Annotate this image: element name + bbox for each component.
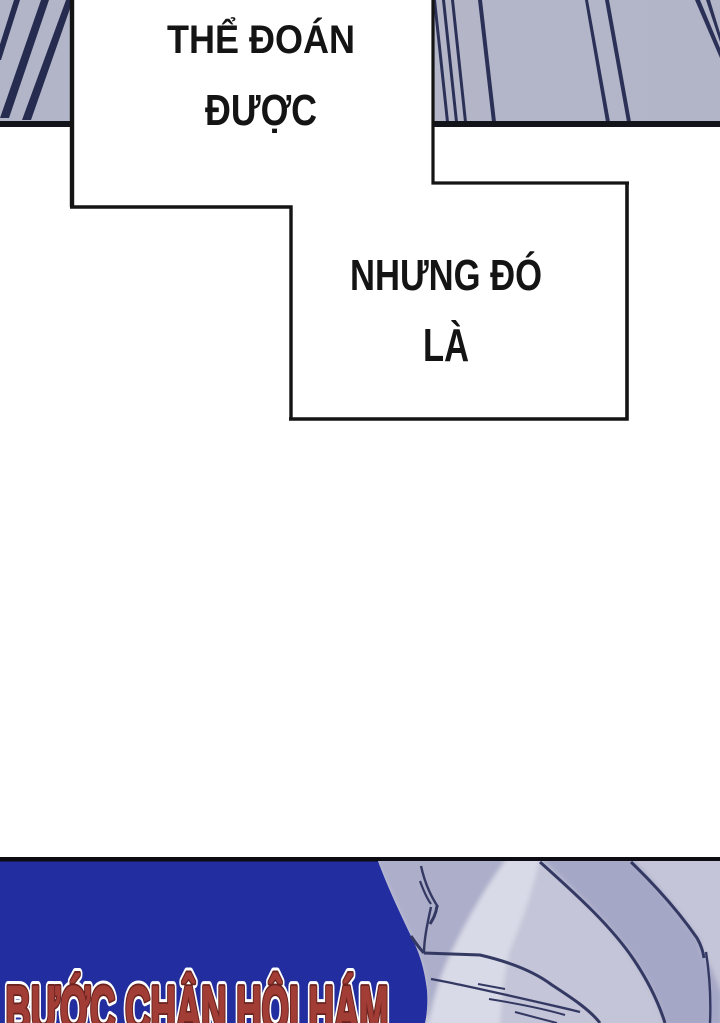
svg-text:NHƯNG ĐÓ: NHƯNG ĐÓ [350,250,542,300]
svg-text:ĐƯỢC: ĐƯỢC [205,86,317,135]
svg-text:BƯỚC CHÂN HỘI HÁM: BƯỚC CHÂN HỘI HÁM [6,972,389,1023]
svg-text:LÀ: LÀ [423,319,469,371]
svg-text:THỂ ĐOÁN: THỂ ĐOÁN [167,15,355,62]
